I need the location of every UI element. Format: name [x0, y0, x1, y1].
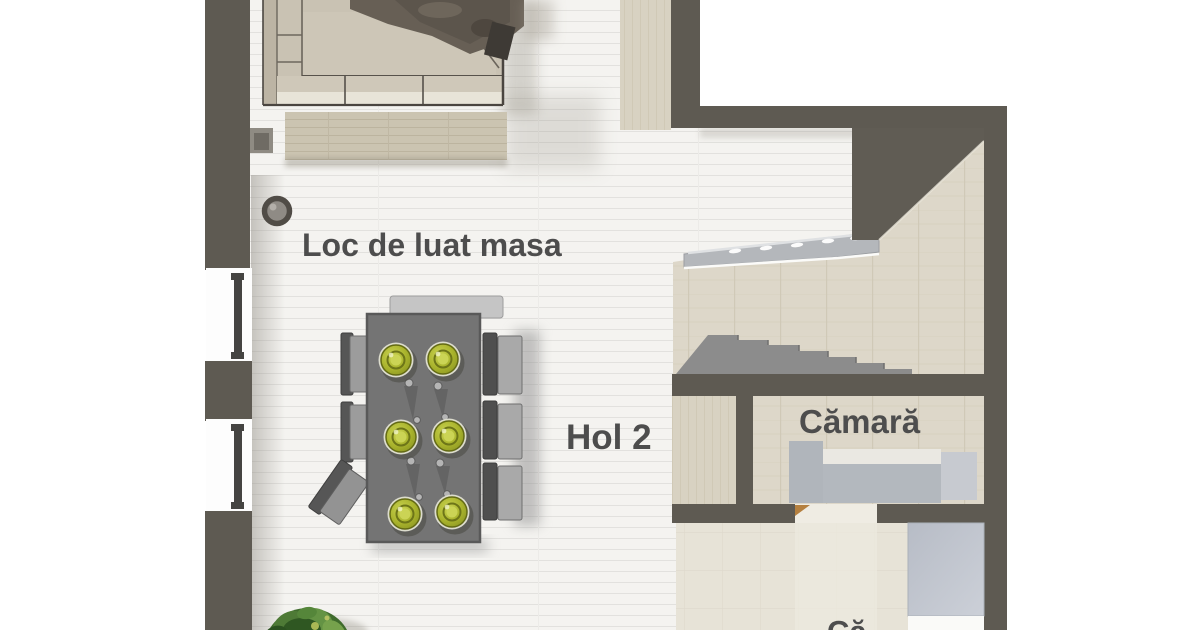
svg-text:Hol 2: Hol 2: [566, 418, 652, 457]
svg-text:Cămară: Cămară: [799, 403, 921, 440]
svg-text:Loc de luat masa: Loc de luat masa: [302, 227, 562, 263]
svg-text:Că: Că: [827, 614, 867, 630]
